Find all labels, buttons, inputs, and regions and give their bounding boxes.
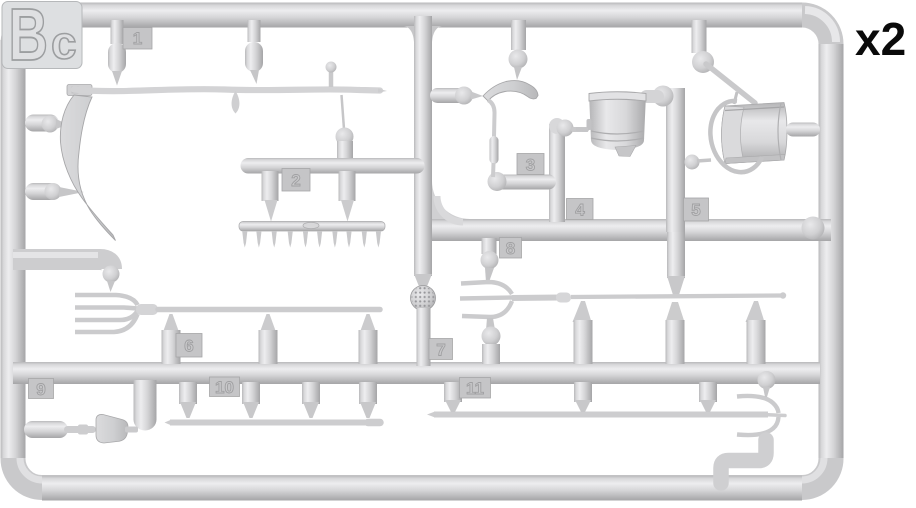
svg-text:x2: x2 [855, 13, 906, 65]
svg-text:10: 10 [215, 378, 234, 397]
svg-text:c: c [51, 17, 77, 69]
svg-text:7: 7 [436, 341, 445, 360]
svg-text:1: 1 [133, 29, 142, 48]
svg-text:8: 8 [506, 239, 515, 258]
svg-text:11: 11 [466, 379, 484, 398]
svg-text:5: 5 [691, 201, 700, 220]
svg-text:4: 4 [575, 201, 585, 220]
svg-text:2: 2 [291, 171, 300, 190]
svg-text:B: B [9, 0, 49, 76]
svg-text:9: 9 [36, 380, 45, 399]
svg-text:3: 3 [526, 156, 535, 175]
svg-text:6: 6 [184, 337, 193, 356]
